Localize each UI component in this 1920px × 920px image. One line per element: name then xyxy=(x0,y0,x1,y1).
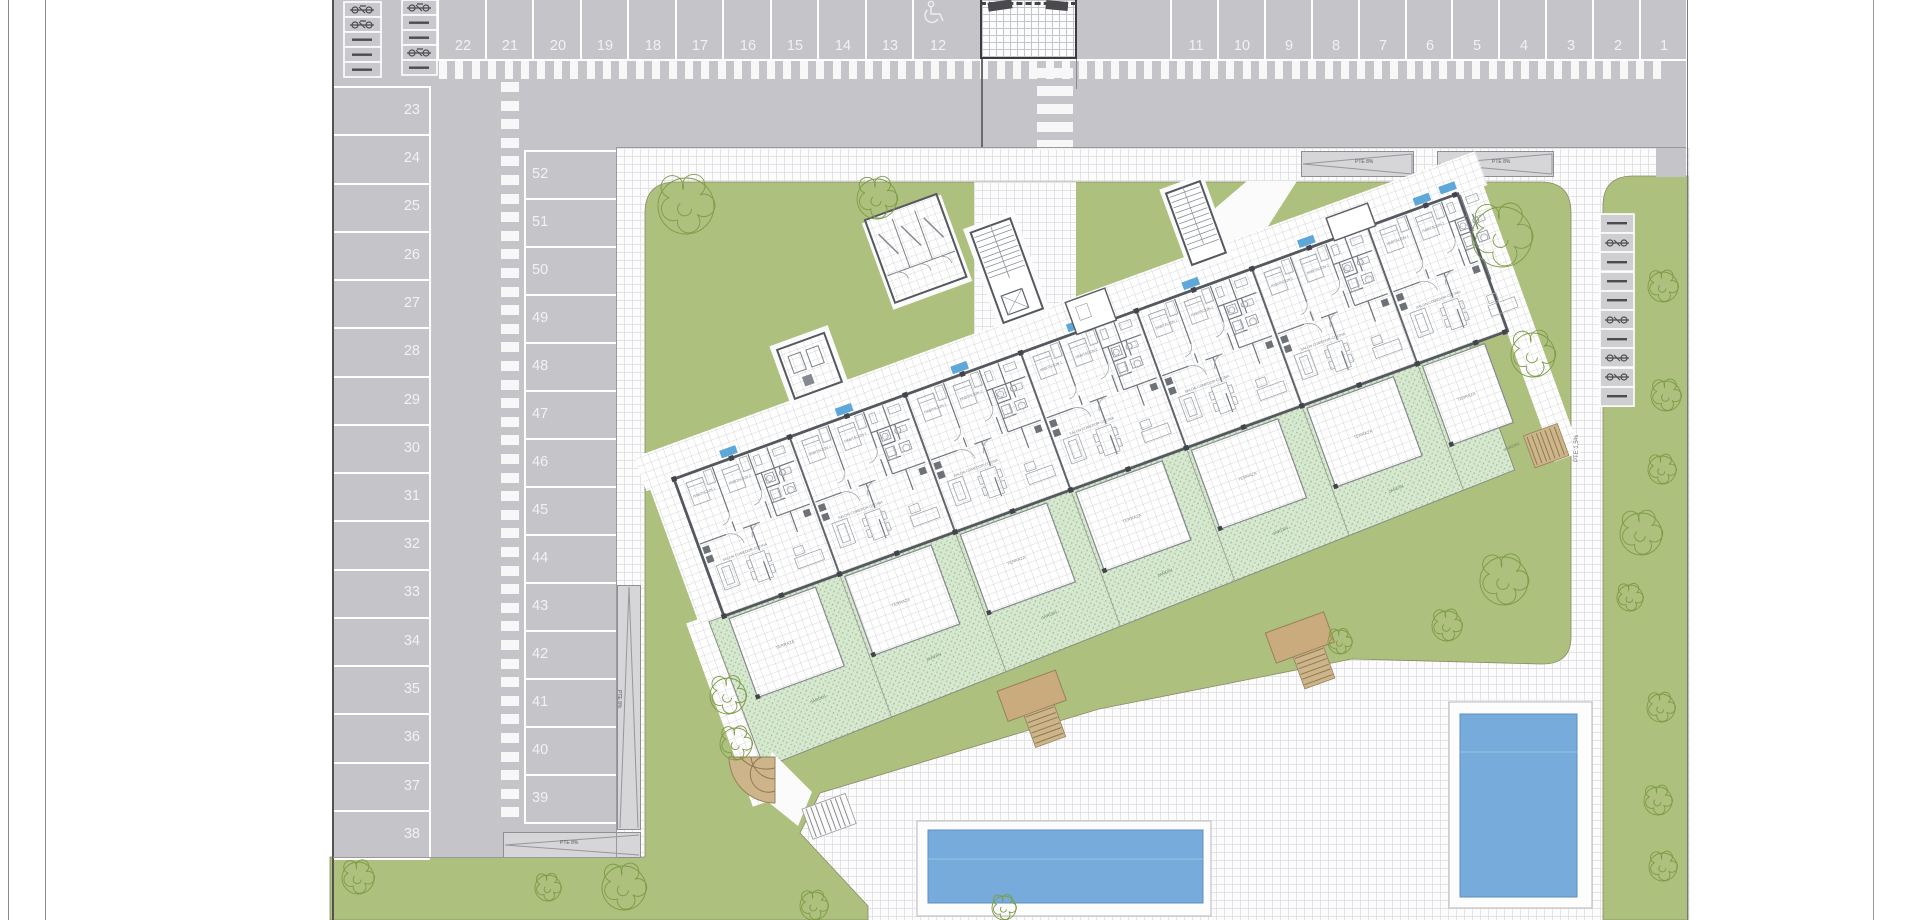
svg-text:PTE 1,5%: PTE 1,5% xyxy=(1574,434,1580,462)
